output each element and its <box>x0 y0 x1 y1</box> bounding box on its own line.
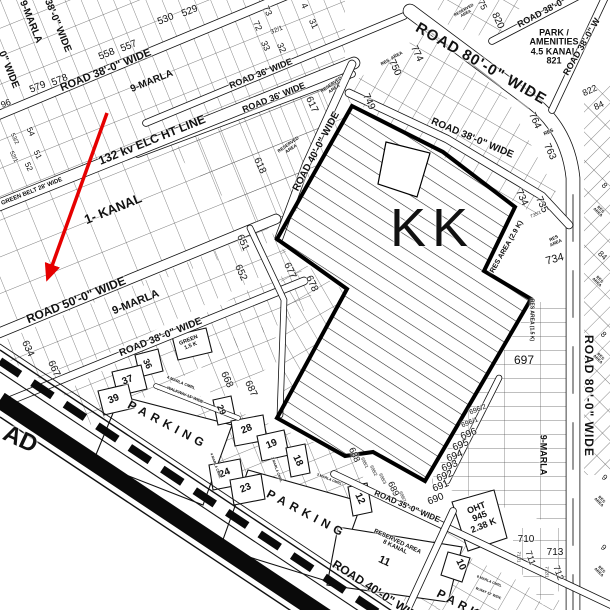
map-label: 678 <box>303 274 319 294</box>
map-label: 529 <box>180 4 199 20</box>
map-label: ROAD 36' WIDE <box>241 81 307 115</box>
map-label: 132 kv ELC HT LINE <box>97 113 207 167</box>
map-label: 72 <box>251 19 264 32</box>
map-label: 651 <box>234 233 250 253</box>
map-label: 688 <box>347 446 362 464</box>
map-label: 1- KANAL <box>82 191 143 226</box>
map-label: 712 <box>551 564 565 581</box>
map-label: 32 <box>275 41 288 54</box>
map-label: 32/1 <box>270 26 284 37</box>
map-label: 711/1 <box>516 552 521 563</box>
map-label: 53/2 <box>9 132 20 145</box>
map-label: WALKWAY 15' WIDE <box>166 386 203 404</box>
map-label: 84 <box>592 100 605 113</box>
map-label: ROAD 50'-0" WIDE <box>25 274 128 325</box>
map-label: 4 <box>299 2 310 11</box>
map-label: 33 <box>259 39 272 52</box>
map-label: ROAD 38'-0 <box>516 0 564 30</box>
map-label: 12 <box>352 492 366 506</box>
map-label: 618 <box>251 156 267 176</box>
map-label: 84 <box>596 250 608 262</box>
map-label: GREEN BELT 28' WIDE <box>1 177 64 207</box>
map-label: 668 <box>218 370 234 390</box>
map-label: 52/1 <box>8 150 19 163</box>
map-label: 617 <box>303 95 319 115</box>
map-label: RES AREA (1.5 K) <box>528 299 533 341</box>
map-label: 690 <box>426 492 445 508</box>
map-label: RESERVED AREA <box>277 136 303 158</box>
map-label: 667 <box>45 359 61 379</box>
map-label: 734 <box>513 188 529 208</box>
map-label: RES <box>543 128 555 137</box>
map-label: 735/1 <box>530 211 542 220</box>
map-label: RES AREA <box>593 494 607 508</box>
map-label: PARKING <box>265 487 350 540</box>
map-label: 9 <box>598 543 607 552</box>
map-label: 750 <box>386 58 402 78</box>
map-label: RES AREA <box>592 204 606 218</box>
map-label: 37 <box>121 374 135 388</box>
map-label: 51 <box>31 149 42 161</box>
map-label: RES AREA (2.9 K) <box>489 220 525 275</box>
map-label: 763 <box>541 142 557 162</box>
map-label: 764 <box>526 111 542 131</box>
map-label: 73 <box>261 4 274 17</box>
map-label: 688/2 <box>369 465 378 477</box>
map-label: 734 <box>545 252 566 268</box>
map-label: 36 <box>141 357 154 370</box>
map-label: 711 <box>523 550 537 567</box>
map-label: 3 MARLA CMRL <box>316 473 342 486</box>
map-label: ROAD 36' WIDE <box>228 57 294 91</box>
map-label: 11 <box>376 554 391 569</box>
map-label: 822 <box>581 84 599 99</box>
map-label: 712/1 <box>544 566 549 577</box>
map-label: 0" WIDE <box>0 50 20 90</box>
map-label: 39 <box>107 393 121 407</box>
map-label: 19 <box>265 438 279 452</box>
map-label: 75 <box>476 0 489 12</box>
map-label: 579 <box>28 80 47 96</box>
map-label: 28 <box>240 423 254 437</box>
map-label: 530 <box>156 12 175 28</box>
map-label: 696/2 <box>469 403 488 416</box>
map-label: 9 <box>599 473 608 482</box>
map-label: ROAD 80'-0" WIDE <box>583 335 595 457</box>
map-label: 774 <box>408 44 424 64</box>
map-label: 9-MARLA <box>111 288 161 317</box>
map-label: OHT 945 2.38 K <box>462 499 497 535</box>
map-label: 96 <box>0 98 12 110</box>
map-label: 52 <box>22 161 33 173</box>
map-label: 8 <box>598 330 607 339</box>
map-label: 4 MARLA CMRL <box>209 453 221 479</box>
map-label: 38'-0" WIDE <box>42 0 73 54</box>
map-label: 677 <box>281 261 297 281</box>
map-label: 8 <box>599 181 608 190</box>
map-label: RES AREA <box>593 564 607 578</box>
map-label: 8 MARLA CMRL <box>476 575 502 588</box>
plot-map-screenshot: 9-MARLA38'-0" WIDE0" WIDE530529558557579… <box>0 0 610 610</box>
map-label: RESERVED AREA <box>453 3 476 21</box>
map-label: 54 <box>24 126 35 138</box>
map-label: 31 <box>307 17 320 30</box>
map-label: 820 <box>489 11 505 31</box>
map-labels: 9-MARLA38'-0" WIDE0" WIDE530529558557579… <box>0 0 610 610</box>
map-label: 3 MARLA CMRL <box>270 457 282 483</box>
map-label: 749 <box>360 92 376 112</box>
map-label: RES AREA <box>547 234 563 248</box>
map-label: 29 <box>215 403 228 416</box>
map-label: 9-MARLA <box>538 435 547 476</box>
map-label: 697 <box>514 354 534 366</box>
sector-kk-label: KK <box>390 200 474 256</box>
map-label: 23 <box>239 482 253 496</box>
map-label: 710 <box>518 535 535 545</box>
map-label: W.WAY 12' WIDE <box>475 587 502 601</box>
map-label: 9-MARLA <box>17 0 43 45</box>
map-label: RESERVED AREA 8 KANAL <box>370 528 422 561</box>
map-label: 634 <box>19 339 35 359</box>
map-label: 687 <box>242 379 258 399</box>
map-label: 9-MARLA <box>129 69 175 95</box>
map-label: 713 <box>547 548 564 558</box>
map-label: 652 <box>232 263 248 283</box>
map-label: 10 <box>453 558 467 572</box>
map-label: PARKING <box>126 398 211 451</box>
map-label: RES AREA <box>591 274 605 288</box>
map-label: AD <box>0 421 41 458</box>
map-label: 18 <box>290 454 304 468</box>
map-label: ROAD 38'-0" WIDE <box>429 117 514 161</box>
map-label: GREEN 1.5 K <box>179 335 201 353</box>
map-label: ROAD 40'-0" WIDE <box>292 111 343 194</box>
map-label: 688/1 <box>360 457 369 469</box>
map-label: RESERVED AREA <box>320 76 346 98</box>
